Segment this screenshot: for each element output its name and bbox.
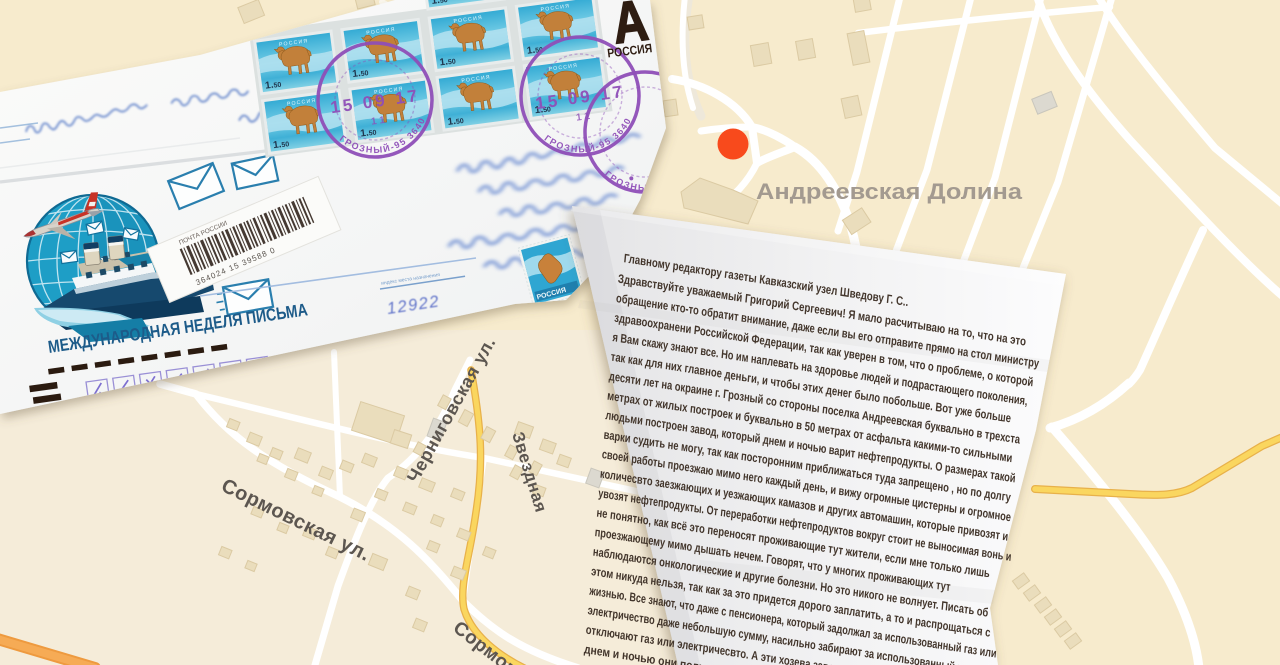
svg-text:Андреевская Долина: Андреевская Долина [756, 179, 1023, 204]
svg-text:1 1: 1 1 [370, 115, 386, 128]
